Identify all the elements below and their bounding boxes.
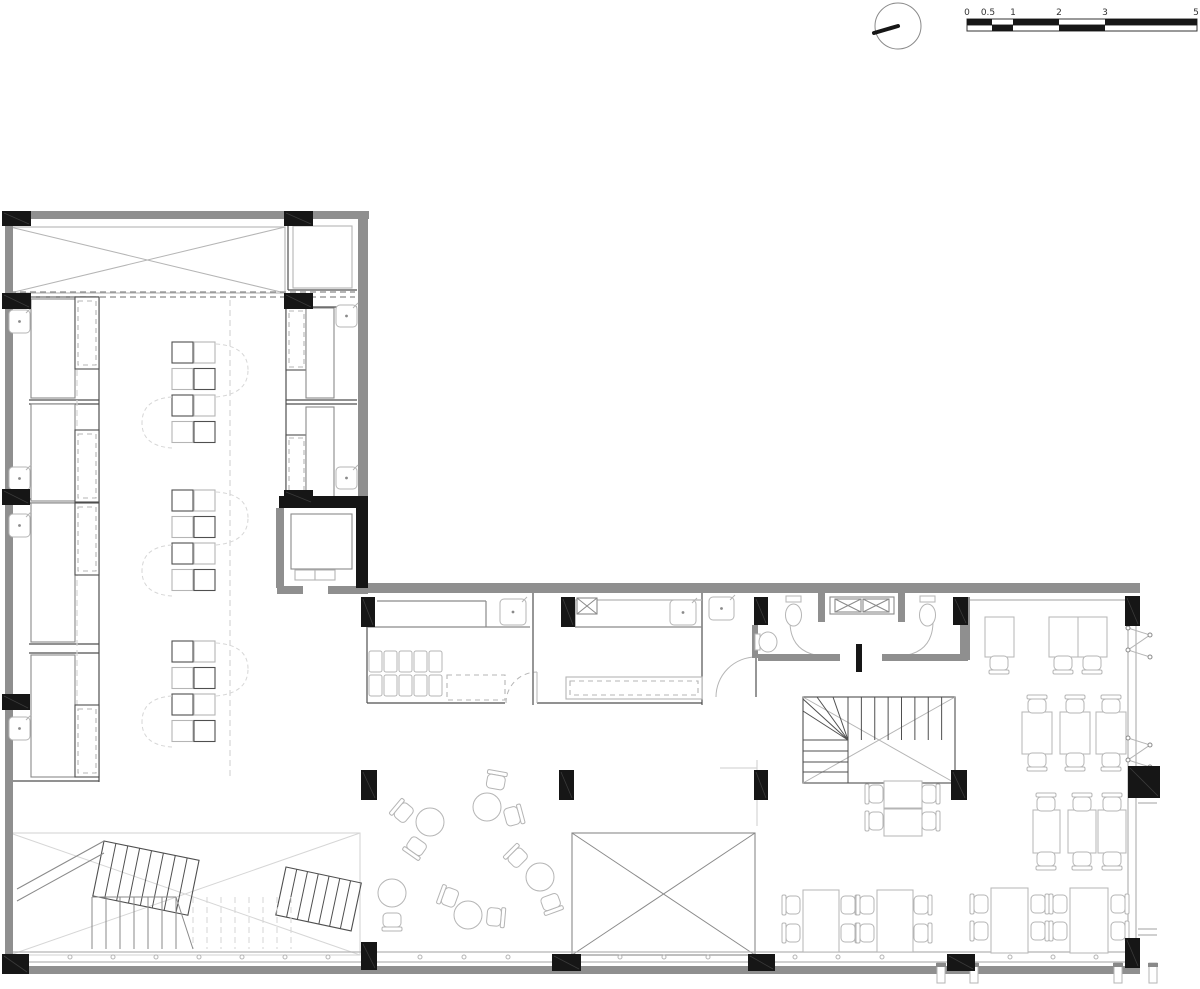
chair-seat bbox=[1111, 895, 1125, 913]
chair-seat bbox=[1073, 852, 1091, 866]
scale-label: 0.5 bbox=[981, 8, 995, 18]
chair-seat bbox=[990, 656, 1008, 670]
door-swing-arc bbox=[790, 623, 822, 656]
chair bbox=[922, 784, 940, 804]
stair-tread bbox=[319, 876, 329, 924]
stair-tread bbox=[164, 856, 175, 911]
structural-column bbox=[953, 597, 968, 625]
display-square bbox=[194, 543, 215, 564]
mullion-tick bbox=[283, 955, 287, 959]
scale-segment bbox=[1105, 19, 1197, 25]
sink bbox=[670, 598, 697, 625]
chair-seat bbox=[486, 907, 502, 926]
chair bbox=[1036, 852, 1056, 870]
chair-seat bbox=[974, 922, 988, 940]
display-square bbox=[194, 668, 215, 689]
window-symbol bbox=[1126, 626, 1152, 659]
window-hinge-dot bbox=[1126, 736, 1130, 740]
wall-segment bbox=[5, 211, 369, 219]
chair-seat bbox=[486, 774, 506, 791]
stair-winder bbox=[803, 711, 848, 740]
chair bbox=[914, 895, 932, 915]
structural-column bbox=[284, 490, 313, 504]
chair-back bbox=[1101, 695, 1121, 699]
stair-tread bbox=[330, 878, 340, 926]
chair-seat bbox=[1028, 753, 1046, 767]
wall-segment bbox=[276, 508, 284, 588]
dining-table bbox=[991, 888, 1028, 953]
display-cluster bbox=[142, 490, 248, 596]
fixture-rect bbox=[78, 301, 96, 365]
chair-back bbox=[1072, 793, 1092, 797]
fixture-rect bbox=[293, 226, 352, 288]
fixture-rect bbox=[31, 503, 75, 642]
window-zigzag bbox=[1128, 628, 1150, 657]
stair-winder bbox=[817, 697, 848, 740]
display-square bbox=[194, 395, 215, 416]
mullion-tick bbox=[506, 955, 510, 959]
sink bbox=[500, 597, 527, 625]
mullion-tick bbox=[326, 955, 330, 959]
kitchen-appliance bbox=[384, 651, 397, 672]
dining-table bbox=[1049, 617, 1078, 657]
chair-seat bbox=[1028, 699, 1046, 713]
display-square bbox=[172, 395, 193, 416]
structural-column bbox=[951, 770, 967, 800]
display-square bbox=[172, 369, 193, 390]
stair-flight bbox=[93, 841, 199, 915]
chair bbox=[782, 923, 800, 943]
mullion-tick bbox=[1008, 955, 1012, 959]
chair bbox=[782, 895, 800, 915]
stair-diagonal bbox=[17, 853, 104, 901]
sink bbox=[9, 715, 31, 740]
chair bbox=[1065, 753, 1085, 771]
wall-segment bbox=[358, 211, 368, 503]
chair-seat bbox=[1103, 797, 1121, 811]
structural-column bbox=[2, 954, 29, 974]
chair-back bbox=[1036, 793, 1056, 797]
fixture-rect bbox=[315, 570, 335, 580]
swing-arc bbox=[216, 370, 248, 397]
chair bbox=[1102, 793, 1122, 811]
chair bbox=[1036, 793, 1056, 811]
scale-label: 0 bbox=[964, 8, 970, 18]
chair-seat bbox=[1037, 852, 1055, 866]
fixture-rect bbox=[570, 681, 698, 695]
chair-seat bbox=[786, 896, 800, 914]
toilet bbox=[920, 596, 936, 626]
stair-tread bbox=[176, 858, 187, 913]
chair-seat bbox=[841, 924, 855, 942]
window-hinge-dot bbox=[1148, 743, 1152, 747]
sink bbox=[9, 465, 31, 490]
chair-seat bbox=[786, 924, 800, 942]
sink bbox=[336, 303, 358, 327]
fixture-rect bbox=[31, 404, 75, 501]
chair bbox=[989, 656, 1009, 674]
structural-column bbox=[559, 770, 574, 800]
window-symbol bbox=[1126, 736, 1152, 769]
fixture-rect bbox=[289, 311, 304, 367]
kitchen-appliance bbox=[399, 651, 412, 672]
chair-back bbox=[928, 895, 932, 915]
display-square bbox=[172, 422, 193, 443]
structural-column bbox=[2, 489, 30, 505]
swing-arc bbox=[216, 643, 248, 669]
urinal bbox=[755, 632, 777, 652]
mullion-tick bbox=[618, 955, 622, 959]
crossed-area bbox=[10, 227, 285, 293]
equipment-xbox bbox=[863, 599, 889, 612]
stair-diagonal bbox=[17, 841, 104, 889]
facade-post bbox=[1148, 963, 1158, 983]
chair bbox=[1053, 656, 1073, 674]
display-square bbox=[172, 342, 193, 363]
sink-drain bbox=[345, 477, 348, 480]
chair-seat bbox=[1037, 797, 1055, 811]
mullion-tick bbox=[836, 955, 840, 959]
wall-segment bbox=[366, 583, 1140, 593]
toilet bbox=[786, 596, 802, 626]
structural-column bbox=[361, 597, 375, 627]
equipment-xbox bbox=[577, 598, 597, 614]
chair-seat bbox=[922, 812, 936, 830]
kitchen-appliance bbox=[384, 675, 397, 696]
swing-arc bbox=[216, 669, 248, 696]
display-square bbox=[194, 517, 215, 538]
post-cap bbox=[1148, 963, 1158, 967]
window-hinge-dot bbox=[1126, 648, 1130, 652]
mullion-tick bbox=[111, 955, 115, 959]
chair bbox=[436, 884, 460, 909]
fixture-rect bbox=[78, 507, 96, 571]
chair-back bbox=[865, 811, 869, 831]
chair-back bbox=[856, 895, 860, 915]
chair-back bbox=[1027, 695, 1047, 699]
chair-seat bbox=[1066, 699, 1084, 713]
door-swing-arc bbox=[901, 623, 933, 656]
swing-arc bbox=[142, 397, 172, 423]
main-stair bbox=[803, 697, 955, 783]
chair-seat bbox=[1053, 922, 1067, 940]
stair-tread bbox=[308, 874, 318, 922]
fixture-rect bbox=[78, 434, 96, 498]
dining-table bbox=[803, 890, 839, 952]
chair-seat bbox=[860, 896, 874, 914]
chair bbox=[486, 906, 506, 927]
chair bbox=[503, 804, 526, 828]
scale-bar: 00.51235 bbox=[964, 8, 1199, 31]
wall-segment bbox=[818, 592, 825, 622]
kitchen-appliance bbox=[399, 675, 412, 696]
display-cluster bbox=[142, 641, 248, 747]
swing-arc bbox=[216, 518, 248, 545]
stair-tread bbox=[128, 848, 139, 903]
swing-arc bbox=[216, 344, 248, 370]
structural-column bbox=[552, 954, 581, 971]
structural-column bbox=[748, 954, 775, 971]
chair-seat bbox=[914, 924, 928, 942]
display-square bbox=[172, 543, 193, 564]
swing-arc bbox=[142, 545, 172, 571]
kitchen-appliance bbox=[429, 651, 442, 672]
mullion-tick bbox=[154, 955, 158, 959]
sink-drain bbox=[345, 315, 348, 318]
sink-drain bbox=[18, 477, 21, 480]
kitchen-appliance bbox=[414, 651, 427, 672]
dining-table bbox=[1096, 712, 1126, 754]
scale-segment bbox=[967, 19, 992, 25]
display-square bbox=[194, 694, 215, 715]
chair bbox=[1082, 656, 1102, 674]
cafe-round-table bbox=[378, 879, 406, 907]
chair bbox=[856, 895, 874, 915]
display-square bbox=[172, 641, 193, 662]
display-square bbox=[194, 570, 215, 591]
stair-tread bbox=[287, 869, 297, 917]
fixture-rect bbox=[447, 675, 505, 700]
chair bbox=[865, 784, 883, 804]
wall-segment bbox=[758, 654, 840, 661]
facade-post bbox=[936, 963, 946, 983]
structural-column bbox=[361, 942, 377, 970]
mullion-tick bbox=[1051, 955, 1055, 959]
window-hinge-dot bbox=[1148, 655, 1152, 659]
facade-post bbox=[1113, 963, 1123, 983]
sink-drain bbox=[682, 611, 685, 614]
chair-back bbox=[928, 923, 932, 943]
fixture-rect bbox=[31, 655, 75, 777]
display-square bbox=[194, 422, 215, 443]
display-square bbox=[194, 369, 215, 390]
mullion-tick bbox=[68, 955, 72, 959]
window-zigzag bbox=[1128, 738, 1150, 767]
chair-seat bbox=[860, 924, 874, 942]
chair-back bbox=[936, 811, 940, 831]
structural-column bbox=[947, 954, 975, 971]
door-swing-arc bbox=[506, 672, 537, 703]
chair-seat bbox=[1066, 753, 1084, 767]
chair bbox=[1072, 793, 1092, 811]
swing-arc bbox=[142, 571, 172, 596]
window-hinge-dot bbox=[1148, 633, 1152, 637]
dining-table bbox=[884, 781, 922, 808]
stair-flight bbox=[276, 867, 362, 931]
display-square bbox=[194, 490, 215, 511]
chair bbox=[1101, 695, 1121, 713]
swing-arc bbox=[142, 696, 172, 722]
chair bbox=[1065, 695, 1085, 713]
chair-back bbox=[1065, 695, 1085, 699]
wall-segment bbox=[898, 592, 905, 622]
structural-column bbox=[754, 597, 768, 625]
display-cluster bbox=[142, 342, 248, 448]
toilet-tank bbox=[920, 596, 935, 602]
cafe-round-table bbox=[526, 863, 554, 891]
chair-back bbox=[382, 927, 402, 931]
display-square bbox=[172, 694, 193, 715]
scale-segment bbox=[992, 25, 1013, 31]
kitchen-appliance bbox=[414, 675, 427, 696]
scale-label: 1 bbox=[1010, 8, 1016, 18]
post-cap bbox=[1113, 963, 1123, 967]
sink-drain bbox=[18, 727, 21, 730]
chair bbox=[922, 811, 940, 831]
chair-back bbox=[1102, 793, 1122, 797]
chair-seat bbox=[1031, 922, 1045, 940]
stair-tread bbox=[340, 881, 350, 929]
structural-column bbox=[2, 293, 31, 309]
chair bbox=[856, 923, 874, 943]
chair-seat bbox=[1103, 852, 1121, 866]
swing-arc bbox=[216, 492, 248, 518]
window-hinge-dot bbox=[1126, 758, 1130, 762]
chair-seat bbox=[383, 913, 401, 927]
structural-column bbox=[2, 211, 31, 226]
chair bbox=[1049, 894, 1067, 914]
toilet-bowl bbox=[786, 604, 802, 626]
structural-column bbox=[361, 770, 377, 800]
dining-table bbox=[884, 809, 922, 836]
structural-column bbox=[284, 211, 313, 226]
fixture-rect bbox=[291, 514, 352, 569]
sink-drain bbox=[720, 607, 723, 610]
fixture-rect bbox=[295, 570, 315, 580]
chair bbox=[503, 843, 530, 870]
fixture-rect bbox=[306, 308, 334, 398]
chair-back bbox=[1072, 866, 1092, 870]
chair-back bbox=[1045, 894, 1049, 914]
sink bbox=[709, 595, 735, 620]
chair bbox=[1072, 852, 1092, 870]
chair bbox=[1102, 852, 1122, 870]
window-hinge-dot bbox=[1126, 626, 1130, 630]
sink-drain bbox=[512, 611, 515, 614]
dining-table bbox=[1068, 810, 1096, 853]
structural-column bbox=[284, 293, 313, 309]
kitchen-appliance bbox=[369, 675, 382, 696]
dining-table bbox=[1022, 712, 1052, 754]
urinal-bowl bbox=[759, 632, 777, 652]
kitchen-appliance bbox=[369, 651, 382, 672]
mullion-tick bbox=[462, 955, 466, 959]
scale-segment bbox=[1013, 19, 1059, 25]
fixture-rect bbox=[289, 438, 304, 494]
mullion-tick bbox=[880, 955, 884, 959]
cafe-round-table bbox=[473, 793, 501, 821]
sink bbox=[9, 512, 31, 537]
dining-table bbox=[1070, 888, 1108, 953]
fixture-rect bbox=[78, 709, 96, 773]
chair-back bbox=[856, 923, 860, 943]
chair-seat bbox=[869, 785, 883, 803]
dining-table bbox=[877, 890, 913, 952]
toilet-tank bbox=[786, 596, 801, 602]
flight-outline bbox=[276, 867, 362, 931]
dining-table bbox=[1060, 712, 1090, 754]
stair-tread bbox=[297, 872, 307, 920]
chair bbox=[970, 894, 988, 914]
chair bbox=[1031, 921, 1049, 941]
mullion-tick bbox=[706, 955, 710, 959]
kitchen-appliance bbox=[429, 675, 442, 696]
chair-seat bbox=[1073, 797, 1091, 811]
door-swing-arc bbox=[716, 657, 756, 697]
chair bbox=[1027, 753, 1047, 771]
cafe-round-table bbox=[416, 808, 444, 836]
north-indicator bbox=[874, 3, 921, 49]
chair-seat bbox=[1054, 656, 1072, 670]
chair-back bbox=[970, 921, 974, 941]
chair bbox=[539, 892, 564, 916]
mullion-tick bbox=[240, 955, 244, 959]
chair-back bbox=[782, 895, 786, 915]
floor-plan: 00.51235 bbox=[0, 0, 1200, 989]
chair-back bbox=[936, 784, 940, 804]
chair-seat bbox=[841, 896, 855, 914]
display-square bbox=[172, 490, 193, 511]
dining-table bbox=[1033, 810, 1060, 853]
chair-back bbox=[1125, 894, 1129, 914]
sink bbox=[336, 465, 358, 489]
scale-label: 3 bbox=[1102, 8, 1108, 18]
equipment-xbox bbox=[835, 599, 861, 612]
wall-segment bbox=[277, 586, 303, 594]
chair-back bbox=[1036, 866, 1056, 870]
chair-back bbox=[1101, 767, 1121, 771]
chair-back bbox=[970, 894, 974, 914]
chair-seat bbox=[1102, 699, 1120, 713]
chair bbox=[865, 811, 883, 831]
chair-seat bbox=[914, 896, 928, 914]
cafe-round-table bbox=[454, 901, 482, 929]
chair bbox=[485, 769, 508, 790]
mullion-tick bbox=[1094, 955, 1098, 959]
chair-back bbox=[1027, 767, 1047, 771]
swing-arc bbox=[142, 722, 172, 747]
structural-column bbox=[1128, 766, 1160, 798]
mullion-tick bbox=[662, 955, 666, 959]
structural-column bbox=[754, 770, 768, 800]
display-square bbox=[172, 668, 193, 689]
stair-tread bbox=[105, 843, 116, 898]
sink-drain bbox=[18, 524, 21, 527]
structural-column bbox=[561, 597, 575, 627]
dining-table bbox=[985, 617, 1014, 657]
display-square bbox=[194, 342, 215, 363]
floor-plan-canvas: 00.51235 bbox=[0, 0, 1200, 989]
chair-back bbox=[1049, 921, 1053, 941]
wall-segment bbox=[882, 654, 968, 661]
display-square bbox=[172, 721, 193, 742]
swing-arc bbox=[142, 423, 172, 448]
fixture-rect bbox=[306, 407, 334, 497]
chair bbox=[914, 923, 932, 943]
scale-label: 2 bbox=[1056, 8, 1062, 18]
structural-column bbox=[2, 694, 30, 710]
chair bbox=[389, 798, 416, 825]
scale-segment bbox=[1059, 25, 1105, 31]
structural-column bbox=[1125, 938, 1140, 968]
chair bbox=[402, 835, 429, 861]
chair-seat bbox=[1111, 922, 1125, 940]
mullion-tick bbox=[793, 955, 797, 959]
display-square bbox=[172, 517, 193, 538]
chair-back bbox=[1082, 670, 1102, 674]
mullion-tick bbox=[418, 955, 422, 959]
chair bbox=[970, 921, 988, 941]
